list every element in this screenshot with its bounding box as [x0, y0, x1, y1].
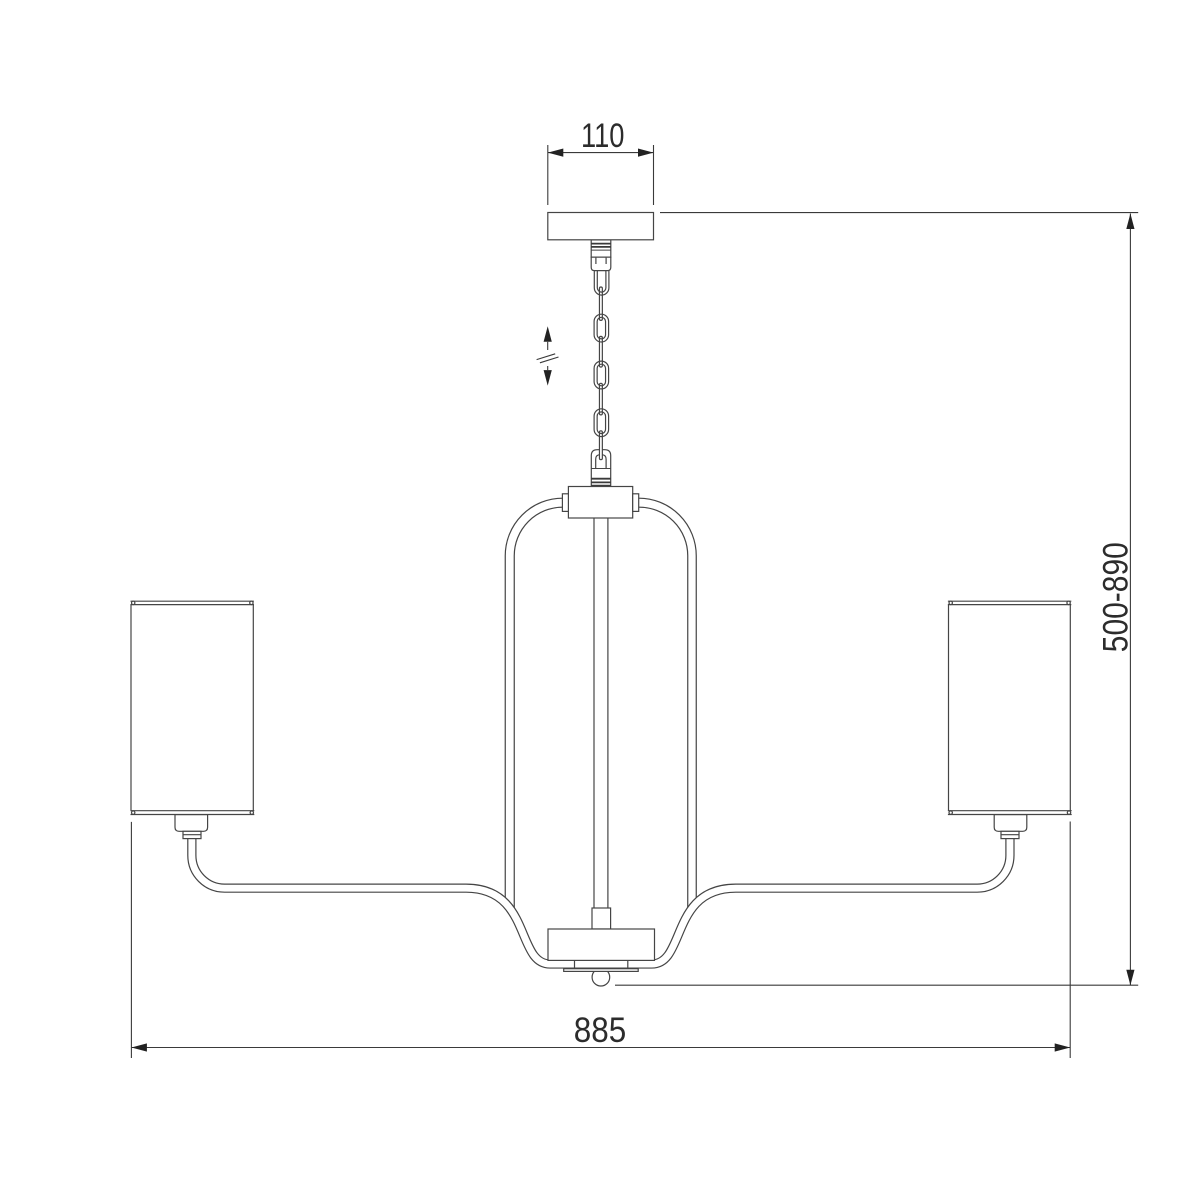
svg-text:885: 885 [574, 1010, 627, 1050]
svg-text:110: 110 [581, 117, 625, 155]
svg-text:500-890: 500-890 [1095, 542, 1135, 652]
